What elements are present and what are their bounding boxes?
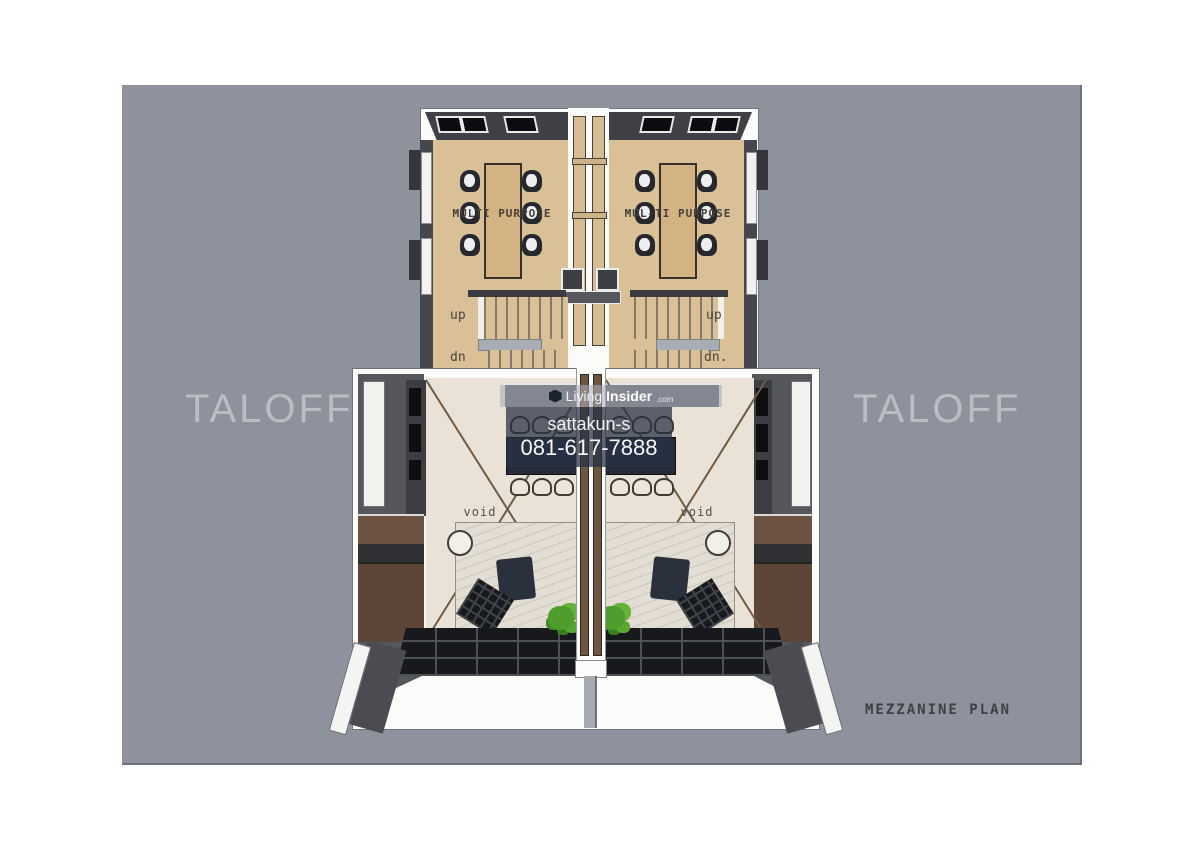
void-label-right: void — [672, 505, 722, 519]
chair — [510, 478, 530, 496]
stair-rail — [468, 290, 566, 297]
watermark-brand-first: Living — [566, 388, 603, 404]
room-label-right: MUL-TI PURPOSE — [613, 207, 743, 220]
void-label-left: void — [455, 505, 505, 519]
stair-run-up — [478, 297, 568, 339]
chair — [697, 234, 717, 256]
watermark-user: sattakun-s — [547, 413, 630, 435]
chair — [460, 170, 480, 192]
wall-window-panel — [421, 238, 432, 295]
wall-window-panel — [746, 238, 757, 295]
post — [584, 676, 597, 728]
wall-fin — [409, 240, 420, 280]
watermark-brand-band: LivingInsider.com — [500, 385, 722, 407]
chair — [532, 478, 552, 496]
side-lamp — [705, 530, 731, 556]
screenshot-root: MULTI PURPOSE MUL-TI PURPOSE up dn up dn… — [0, 0, 1200, 848]
window-icon — [687, 116, 741, 133]
party-wall-column — [592, 116, 605, 346]
chair — [610, 478, 630, 496]
livinginsider-logo-icon — [549, 390, 562, 403]
dining-table — [484, 163, 522, 279]
wall-window-panel — [746, 152, 757, 224]
wall-fin — [757, 240, 768, 280]
watermark-taloff-right: TALOFF — [853, 387, 1021, 432]
stair-up-label-left: up — [450, 308, 466, 323]
stair-rail — [630, 290, 728, 297]
watermark-phone: 081-617-7888 — [520, 435, 657, 461]
room-label-left: MULTI PURPOSE — [437, 207, 567, 220]
shaft-box — [596, 268, 619, 291]
chair — [554, 478, 574, 496]
chair — [460, 234, 480, 256]
stair-down-label-right: dn. — [704, 350, 727, 365]
window-icon — [503, 116, 539, 133]
wall-window-panel — [421, 152, 432, 224]
wall-fin — [757, 150, 768, 190]
wall-fin — [409, 150, 420, 190]
chair — [635, 234, 655, 256]
stair-down-label-left: dn — [450, 350, 466, 365]
stair-up-label-right: up — [706, 308, 722, 323]
watermark-taloff-left: TALOFF — [185, 387, 353, 432]
side-lamp — [447, 530, 473, 556]
window-icon — [639, 116, 675, 133]
window-icon — [435, 116, 489, 133]
chair — [632, 478, 652, 496]
watermark-contact-box: sattakun-s 081-617-7888 — [506, 407, 672, 467]
party-wall-rung — [572, 158, 607, 165]
shaft-box — [561, 268, 584, 291]
chair — [697, 170, 717, 192]
dining-table — [659, 163, 697, 279]
chair — [654, 478, 674, 496]
party-wall-rung — [572, 212, 607, 219]
party-wall-column — [573, 116, 586, 346]
chair — [635, 170, 655, 192]
watermark-brand-suffix: .com — [656, 395, 673, 407]
chair — [522, 234, 542, 256]
plan-caption: MEZZANINE PLAN — [865, 702, 1011, 718]
watermark-brand-second: Insider — [606, 388, 652, 404]
plant-icon — [548, 606, 574, 630]
chair — [522, 170, 542, 192]
